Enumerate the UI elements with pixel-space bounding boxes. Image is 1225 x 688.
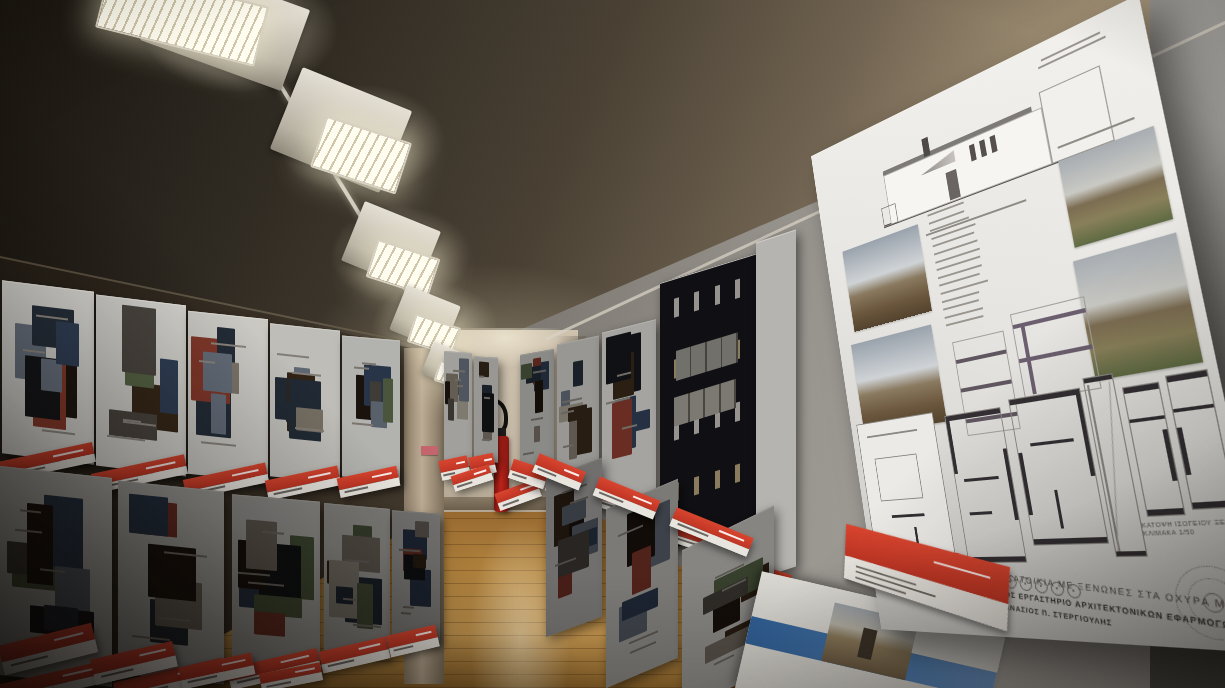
poster-image-block	[203, 352, 233, 394]
poster-caption-line	[484, 397, 489, 399]
sketch-mark	[694, 476, 699, 496]
site-photo	[842, 224, 931, 332]
poster-image-block	[413, 554, 425, 568]
poster-image-block	[246, 519, 277, 571]
sketch-mark	[735, 278, 740, 298]
poster-image-block	[122, 305, 156, 376]
poster-image-block	[448, 398, 454, 421]
sketch-mark	[735, 463, 740, 483]
poster-caption-line	[352, 422, 373, 426]
poster-image-block	[211, 393, 226, 435]
exhibit-poster	[188, 311, 268, 482]
photo-strip	[676, 332, 739, 381]
poster-image-block	[573, 359, 584, 387]
photo-strip	[674, 379, 737, 428]
paragraph-line	[931, 223, 975, 240]
poster-image-block	[336, 587, 353, 605]
poster-image-block	[535, 380, 544, 413]
poster-caption-line	[630, 641, 656, 654]
poster-image-block	[357, 583, 373, 630]
poster-image-block	[521, 363, 531, 380]
poster-caption-line	[455, 379, 461, 381]
sketch-mark	[674, 297, 679, 317]
floor-plan-caption: ΚΑΤΟΨΗ ΙΣΟΓΕΙΟΥ ΞΕΝΩΝΩΝ ΚΛΙΜΑΚΑ 1/50	[1141, 517, 1225, 538]
poster-image-block	[160, 359, 178, 415]
poster-image-block	[632, 545, 651, 595]
sketch-mark	[715, 284, 720, 304]
exhibit-poster	[392, 510, 440, 640]
poster-caption-line	[479, 375, 484, 377]
poster-image-block	[606, 332, 631, 385]
poster-caption-line	[401, 612, 411, 615]
poster-caption-line	[42, 429, 75, 435]
exhibit-poster	[2, 280, 94, 464]
sketch-mark	[715, 469, 720, 489]
exhibit-poster	[324, 503, 390, 656]
poster-caption-line	[523, 451, 533, 455]
poster-image-block	[383, 378, 394, 423]
poster-image-block	[27, 503, 53, 586]
description-text	[927, 197, 996, 335]
exhibit-poster	[602, 319, 656, 505]
paragraph-line	[946, 316, 983, 327]
poster-caption-line	[277, 353, 309, 358]
poster-caption-line	[403, 606, 415, 609]
poster-image-block	[129, 493, 168, 536]
exhibit-poster	[444, 351, 472, 466]
poster-image-block	[56, 321, 78, 367]
poster-caption-line	[201, 442, 236, 448]
exhibition-corridor-photo: ΚΑΤΟΨΗ ΙΣΟΓΕΙΟΥ ΞΕΝΩΝΩΝ ΚΛΙΜΑΚΑ 1/50 ΜΟΝ…	[0, 0, 1225, 688]
poster-image-block	[254, 611, 285, 637]
exhibit-poster	[232, 494, 320, 671]
poster-image-block	[415, 521, 430, 538]
poster-image-block	[534, 425, 540, 442]
poster-caption-line	[354, 366, 369, 369]
exhibit-poster	[520, 349, 554, 472]
poster-caption-line	[482, 439, 490, 442]
exhibit-poster	[270, 323, 340, 483]
poster-caption-line	[457, 385, 463, 387]
sketch-mark	[694, 291, 699, 311]
exhibit-poster	[342, 335, 400, 481]
paragraph-line	[934, 240, 977, 256]
poster-caption-line	[531, 417, 543, 421]
poster-caption-line	[453, 370, 465, 373]
exhibit-poster	[96, 294, 186, 476]
exhibit-poster	[474, 356, 498, 463]
